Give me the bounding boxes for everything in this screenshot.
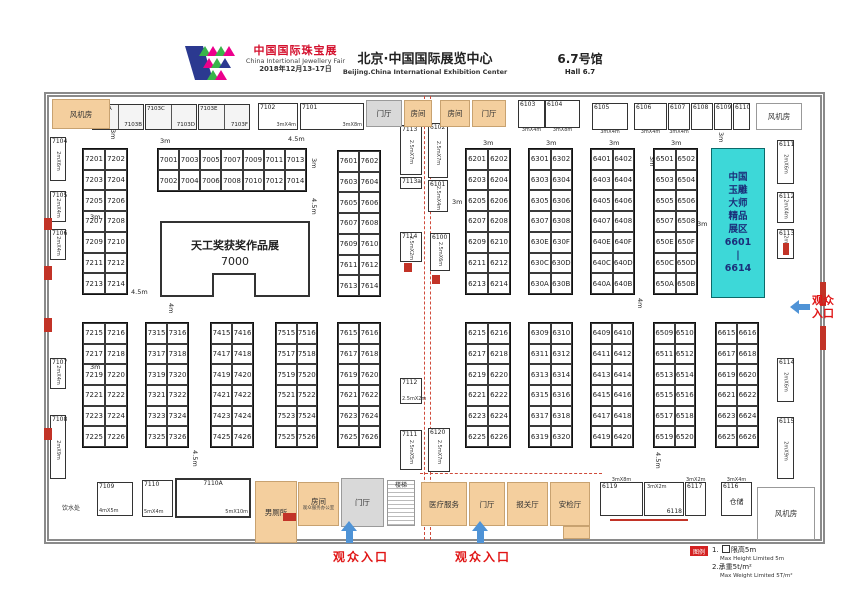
booth-6107: 61073mX4m (668, 103, 690, 130)
booth-6220: 6220 (488, 364, 510, 385)
jade-masters-area-label: 中国 玉雕 大师 精品 展区 6601 | 6614 (725, 171, 751, 275)
dim-label-4.5m-4: 4.5m (310, 198, 318, 215)
floor-plan-page: { "header": { "logo_title": "中国国际珠宝展", "… (0, 0, 844, 597)
dim-label-3m-15: 3m (717, 132, 725, 142)
booth-6226: 6226 (488, 426, 510, 447)
booth-6106: 61063mX4m (634, 103, 667, 130)
booth-7613: 7613 (338, 275, 359, 296)
dim-label-3m-5: 3m (90, 213, 100, 221)
booth-7320: 7320 (167, 364, 188, 385)
booth-7201: 7201 (83, 149, 105, 170)
booth-7614: 7614 (359, 275, 380, 296)
booth-6416: 6416 (612, 385, 633, 406)
booth-7103D: 7103D (172, 105, 197, 129)
legend-line-1-text: 限高5m (731, 546, 756, 554)
booth-6409: 6409 (591, 323, 612, 344)
booth-7620: 7620 (359, 364, 380, 385)
booth-6117: 61173mX2m (685, 482, 706, 516)
booth-7107: 71072mX4m (50, 358, 66, 389)
booth-block-7615-7626: 7615761676177618761976207621762276237624… (337, 322, 381, 448)
booth-6518: 6518 (675, 406, 696, 427)
booth-6208: 6208 (488, 211, 510, 232)
booth-6209: 6209 (466, 232, 488, 253)
booth-6223: 6223 (466, 406, 488, 427)
booth-6512: 6512 (675, 344, 696, 365)
booth-7217: 7217 (83, 344, 105, 365)
booth-6105: 61053mX4m (592, 103, 628, 130)
booth-7424: 7424 (232, 406, 253, 427)
arrow-head-1 (472, 521, 488, 531)
booth-6618: 6618 (737, 344, 758, 365)
visitor-entrance-label-1: 观众入口 (455, 548, 511, 565)
booth-6314: 6314 (551, 364, 573, 385)
room-门厅-1: 门厅 (366, 100, 402, 127)
hall-label-en: Hall 6.7 (545, 68, 615, 76)
booth-7623: 7623 (338, 406, 359, 427)
booth-block-6201-6214: 6201620262036204620562066207620862096210… (465, 148, 511, 295)
door-marker-7 (783, 243, 789, 255)
booth-6207: 6207 (466, 211, 488, 232)
booth-7316: 7316 (167, 323, 188, 344)
booth-7006: 7006 (200, 170, 221, 191)
booth-7215: 7215 (83, 323, 105, 344)
tiangong-area-title: 天工奖获奖作品展 (162, 237, 308, 253)
legend: 图例 1. 限高5m Max Height Limited 5m 2.承重5t/… (690, 545, 793, 580)
booth-6109: 6109 (714, 103, 732, 130)
booth-7220: 7220 (105, 364, 127, 385)
booth-6514: 6514 (675, 364, 696, 385)
dim-label-4.5m-7: 4.5m (131, 288, 148, 296)
booth-7103B: 7103B (119, 105, 144, 129)
booth-6401: 6401 (591, 149, 613, 170)
booth-6519: 6519 (654, 426, 675, 447)
arrow-head-2 (790, 300, 799, 314)
dim-label-4m-8: 4m (167, 303, 175, 313)
visitor-entrance-label-0: 观众入口 (333, 548, 389, 565)
door-marker-5 (404, 263, 412, 272)
booth-6509: 6509 (654, 323, 675, 344)
booth-6406: 6406 (613, 190, 635, 211)
booth-6216: 6216 (488, 323, 510, 344)
dim-label-3m-0: 3m (160, 137, 170, 145)
booth-7106: 71062mX4m (50, 229, 66, 260)
room-安检厅-13: 安检厅 (550, 482, 590, 526)
booth-630E: 630E (529, 232, 551, 253)
booth-6215: 6215 (466, 323, 488, 344)
booth-6110: 6110 (733, 103, 750, 130)
booth-7317: 7317 (146, 344, 167, 365)
booth-640E: 640E (591, 232, 613, 253)
booth-6507: 6507 (654, 211, 676, 232)
room-报关厅-12: 报关厅 (507, 482, 548, 526)
legend-line-2-en: Max Weight Limited 5T/m² (720, 572, 793, 580)
booth-630B: 630B (551, 273, 573, 294)
booth-6309: 6309 (529, 323, 551, 344)
booth-7216: 7216 (105, 323, 127, 344)
booth-6515: 6515 (654, 385, 675, 406)
dim-label-3m-9: 3m (452, 198, 462, 206)
booth-7420: 7420 (232, 364, 253, 385)
booth-7110A: 7110A5mX10m (175, 478, 251, 518)
arrow-head-0 (341, 521, 357, 531)
booth-7102: 71023mX4m (258, 103, 298, 130)
booth-7518: 7518 (297, 344, 318, 365)
booth-6625: 6625 (716, 426, 737, 447)
booth-7225: 7225 (83, 426, 105, 447)
booth-7212: 7212 (105, 253, 127, 274)
booth-7601: 7601 (338, 151, 359, 172)
booth-7321: 7321 (146, 385, 167, 406)
booth-block-7215-7226: 7215721672177218721972207221722272237224… (82, 322, 128, 448)
booth-7524: 7524 (297, 406, 318, 427)
arrow-stem-1 (477, 531, 484, 543)
booth-7319: 7319 (146, 364, 167, 385)
booth-6622: 6622 (737, 385, 758, 406)
booth-7523: 7523 (276, 406, 297, 427)
booth-7208: 7208 (105, 211, 127, 232)
booth-7625: 7625 (338, 426, 359, 447)
booth-6615: 6615 (716, 323, 737, 344)
entrance-arrow-up-icon-1 (472, 521, 488, 543)
booth-6206: 6206 (488, 190, 510, 211)
booth-7014: 7014 (285, 170, 306, 191)
booth-6520: 6520 (675, 426, 696, 447)
booth-6305: 6305 (529, 190, 551, 211)
booth-7615: 7615 (338, 323, 359, 344)
booth-7202: 7202 (105, 149, 127, 170)
arrow-stem-2 (799, 304, 810, 310)
booth-6616: 6616 (737, 323, 758, 344)
booth-6623: 6623 (716, 406, 737, 427)
booth-7525: 7525 (276, 426, 297, 447)
booth-7617: 7617 (338, 344, 359, 365)
booth-6311: 6311 (529, 344, 551, 365)
booth-7325: 7325 (146, 426, 167, 447)
booth-7224: 7224 (105, 406, 127, 427)
booth-block-6509-6520: 6509651065116512651365146515651665176518… (653, 322, 696, 448)
booth-6511: 6511 (654, 344, 675, 365)
booth-7218: 7218 (105, 344, 127, 365)
booth-640A: 640A (591, 273, 613, 294)
booth-7104: 71042mX6m (50, 137, 66, 181)
booth-630A: 630A (529, 273, 551, 294)
booth-6417: 6417 (591, 406, 612, 427)
booth-7515: 7515 (276, 323, 297, 344)
booth-6217: 6217 (466, 344, 488, 365)
booth-7415: 7415 (211, 323, 232, 344)
booth-630C: 630C (529, 253, 551, 274)
booth-6303: 6303 (529, 170, 551, 191)
dim-label-3m-6: 3m (90, 363, 100, 371)
booth-6318: 6318 (551, 406, 573, 427)
booth-6201: 6201 (466, 149, 488, 170)
dim-label-3m-10: 3m (483, 139, 493, 147)
room-风机房-0: 风机房 (52, 99, 110, 129)
booth-6503: 6503 (654, 170, 676, 191)
booth-6313: 6313 (529, 364, 551, 385)
booth-block-7001-7014: 7001700370057007700970117013700270047006… (157, 148, 307, 192)
jewellery-fair-logo-icon (183, 44, 235, 82)
dim-label-4.5m-18: 4.5m (654, 452, 662, 469)
booth-7610: 7610 (359, 234, 380, 255)
booth-7526: 7526 (297, 426, 318, 447)
dim-label-3m-2: 3m (109, 129, 117, 139)
dim-label-3m-13: 3m (671, 139, 681, 147)
venue-title-cn: 北京·中国国际展览中心 (330, 48, 520, 67)
booth-6210: 6210 (488, 232, 510, 253)
booth-6319: 6319 (529, 426, 551, 447)
booth-650A: 650A (654, 273, 676, 294)
booth-6224: 6224 (488, 406, 510, 427)
booth-6412: 6412 (612, 344, 633, 365)
venue-title: 北京·中国国际展览中心 Beijing.China International … (330, 48, 520, 76)
booth-7416: 7416 (232, 323, 253, 344)
booth-7419: 7419 (211, 364, 232, 385)
booth-6205: 6205 (466, 190, 488, 211)
booth-7002: 7002 (158, 170, 179, 191)
door-marker-0 (44, 218, 52, 230)
legend-line-1-prefix: 1. (712, 546, 719, 554)
booth-7213: 7213 (83, 273, 105, 294)
room-男厕所-6: 男厕所 (255, 481, 297, 543)
booth-7103C-7103D: 7103C7103D (145, 104, 197, 130)
booth-7519: 7519 (276, 364, 297, 385)
hall-label: 6.7号馆 Hall 6.7 (545, 50, 615, 76)
booth-7221: 7221 (83, 385, 105, 406)
booth-7607: 7607 (338, 213, 359, 234)
booth-7206: 7206 (105, 190, 127, 211)
booth-6202: 6202 (488, 149, 510, 170)
booth-7013: 7013 (285, 149, 306, 170)
door-marker-2 (44, 318, 52, 332)
room-饮水处-16: 饮水处 (53, 502, 89, 514)
venue-title-en: Beijing.China International Exhibition C… (330, 68, 520, 76)
booth-7318: 7318 (167, 344, 188, 365)
legend-line-1-en: Max Height Limited 5m (720, 555, 793, 563)
booth-7105: 71052mX4m (50, 191, 66, 222)
booth-6119: 61193mX8m (600, 482, 643, 516)
room-门厅-11: 门厅 (469, 482, 505, 526)
booth-6308: 6308 (551, 211, 573, 232)
booth-6120: 61202.5mX7m (428, 428, 450, 472)
booth-7204: 7204 (105, 170, 127, 191)
booth-6419: 6419 (591, 426, 612, 447)
hall-label-cn: 6.7号馆 (545, 50, 615, 67)
booth-6221: 6221 (466, 385, 488, 406)
tiangong-area-number: 7000 (162, 255, 308, 268)
booth-640F: 640F (613, 232, 635, 253)
booth-block-6409-6420: 6409641064116412641364146415641664176418… (590, 322, 634, 448)
jade-masters-area: 中国 玉雕 大师 精品 展区 6601 | 6614 (711, 148, 765, 298)
booth-640D: 640D (613, 253, 635, 274)
booth-7626: 7626 (359, 426, 380, 447)
room-医疗服务-10: 医疗服务 (421, 482, 467, 526)
booth-block-7415-7426: 7415741674177418741974207421742274237424… (210, 322, 254, 448)
booth-7418: 7418 (232, 344, 253, 365)
booth-block-6401-640B: 64016402640364046405640664076408640E640F… (590, 148, 635, 295)
booth-6502: 6502 (676, 149, 698, 170)
booth-7612: 7612 (359, 255, 380, 276)
booth-6316: 6316 (551, 385, 573, 406)
booth-7522: 7522 (297, 385, 318, 406)
booth-7326: 7326 (167, 426, 188, 447)
booth-650E: 650E (654, 232, 676, 253)
door-marker-10 (610, 519, 688, 521)
booth-block-7601-7614: 7601760276037604760576067607760876097610… (337, 150, 381, 297)
booth-630F: 630F (551, 232, 573, 253)
booth-7422: 7422 (232, 385, 253, 406)
booth-6112: 61122mX4m (777, 192, 794, 223)
door-marker-9 (820, 326, 826, 350)
booth-6516: 6516 (675, 385, 696, 406)
booth-6405: 6405 (591, 190, 613, 211)
booth-6506: 6506 (676, 190, 698, 211)
booth-6315: 6315 (529, 385, 551, 406)
booth-7011: 7011 (264, 149, 285, 170)
booth-6214: 6214 (488, 273, 510, 294)
booth-6310: 6310 (551, 323, 573, 344)
door-marker-6 (432, 275, 440, 284)
booth-7624: 7624 (359, 406, 380, 427)
booth-6312: 6312 (551, 344, 573, 365)
booth-6510: 6510 (675, 323, 696, 344)
booth-6219: 6219 (466, 364, 488, 385)
booth-6211: 6211 (466, 253, 488, 274)
booth-6102: 61022.5mX7m (428, 123, 448, 178)
booth-block-6215-6226: 6215621662176218621962206221622262236224… (465, 322, 511, 448)
booth-650F: 650F (676, 232, 698, 253)
booth-7516: 7516 (297, 323, 318, 344)
dim-label-4.5m-1: 4.5m (288, 135, 305, 143)
booth-630D: 630D (551, 253, 573, 274)
booth-6418: 6418 (612, 406, 633, 427)
room-房间-7: 房间观众服务办公室 (298, 482, 339, 526)
booth-7426: 7426 (232, 426, 253, 447)
tiangong-area-notch (212, 273, 256, 297)
booth-6317: 6317 (529, 406, 551, 427)
height-limit-square-icon (722, 545, 730, 553)
booth-7012: 7012 (264, 170, 285, 191)
room-ext-14 (563, 526, 590, 539)
booth-7226: 7226 (105, 426, 127, 447)
booth-6414: 6414 (612, 364, 633, 385)
booth-6304: 6304 (551, 170, 573, 191)
booth-7001: 7001 (158, 149, 179, 170)
booth-6410: 6410 (612, 323, 633, 344)
booth-7004: 7004 (179, 170, 200, 191)
booth-6617: 6617 (716, 344, 737, 365)
booth-6111: 61112mX6m (777, 140, 794, 184)
room-门厅-8: 门厅 (341, 478, 384, 527)
booth-6306: 6306 (551, 190, 573, 211)
booth-6508: 6508 (676, 211, 698, 232)
legend-line-1: 1. 限高5m (712, 545, 793, 555)
booth-6505: 6505 (654, 190, 676, 211)
booth-6619: 6619 (716, 364, 737, 385)
booth-7324: 7324 (167, 406, 188, 427)
booth-6408: 6408 (613, 211, 635, 232)
booth-6620: 6620 (737, 364, 758, 385)
booth-650C: 650C (654, 253, 676, 274)
booth-6115: 61152mX9m (777, 417, 794, 479)
booth-650D: 650D (676, 253, 698, 274)
booth-6204: 6204 (488, 170, 510, 191)
booth-6118: 61183mX2m (644, 482, 684, 516)
booth-6517: 6517 (654, 406, 675, 427)
booth-6212: 6212 (488, 253, 510, 274)
legend-badge: 图例 (690, 546, 708, 556)
fire-lane-line-2 (420, 473, 602, 474)
room-风机房-15: 风机房 (757, 487, 815, 540)
booth-7111: 71112.5mX5m (400, 430, 422, 470)
booth-6301: 6301 (529, 149, 551, 170)
booth-6307: 6307 (529, 211, 551, 232)
booth-7203: 7203 (83, 170, 105, 191)
booth-6413: 6413 (591, 364, 612, 385)
room-风机房-5: 风机房 (756, 103, 802, 130)
booth-7108: 71082mX9m (50, 415, 66, 479)
booth-7205: 7205 (83, 190, 105, 211)
booth-7425: 7425 (211, 426, 232, 447)
door-marker-3 (44, 428, 52, 440)
booth-650B: 650B (676, 273, 698, 294)
booth-7003: 7003 (179, 149, 200, 170)
booth-block-6615-6626: 6615661666176618661966206621662266236624… (715, 322, 759, 448)
booth-7621: 7621 (338, 385, 359, 406)
dim-label-3m-12: 3m (609, 139, 619, 147)
booth-7604: 7604 (359, 172, 380, 193)
booth-6404: 6404 (613, 170, 635, 191)
booth-640B: 640B (613, 273, 635, 294)
booth-7010: 7010 (243, 170, 264, 191)
booth-6407: 6407 (591, 211, 613, 232)
booth-6203: 6203 (466, 170, 488, 191)
booth-7421: 7421 (211, 385, 232, 406)
booth-6225: 6225 (466, 426, 488, 447)
booth-640C: 640C (591, 253, 613, 274)
door-marker-1 (44, 266, 52, 280)
booth-6302: 6302 (551, 149, 573, 170)
room-楼梯-9: 楼梯 (387, 480, 415, 526)
booth-7007: 7007 (221, 149, 242, 170)
booth-7223: 7223 (83, 406, 105, 427)
booth-7618: 7618 (359, 344, 380, 365)
booth-7210: 7210 (105, 232, 127, 253)
booth-block-7515-7526: 7515751675177518751975207521752275237524… (275, 322, 318, 448)
booth-7009: 7009 (243, 149, 264, 170)
booth-6114: 61142mX6m (777, 358, 794, 402)
booth-6411: 6411 (591, 344, 612, 365)
arrow-stem-0 (346, 531, 353, 543)
booth-6415: 6415 (591, 385, 612, 406)
dim-label-4m-17: 4m (636, 298, 644, 308)
booth-7423: 7423 (211, 406, 232, 427)
entrance-arrow-up-icon-0 (341, 521, 357, 543)
booth-7109: 71094mX5m (97, 482, 133, 516)
dim-label-3m-11: 3m (546, 139, 556, 147)
entrance-arrow-left-icon-2 (790, 300, 810, 314)
booth-7322: 7322 (167, 385, 188, 406)
booth-7222: 7222 (105, 385, 127, 406)
booth-6222: 6222 (488, 385, 510, 406)
visitor-entrance-label-2: 观众入口 (810, 294, 836, 320)
booth-6504: 6504 (676, 170, 698, 191)
booth-7114: 71142.5mX2m (400, 232, 422, 262)
booth-7103C: 7103C (146, 105, 172, 129)
booth-7112: 71122.5mX2m (400, 378, 422, 404)
booth-7005: 7005 (200, 149, 221, 170)
booth-7622: 7622 (359, 385, 380, 406)
